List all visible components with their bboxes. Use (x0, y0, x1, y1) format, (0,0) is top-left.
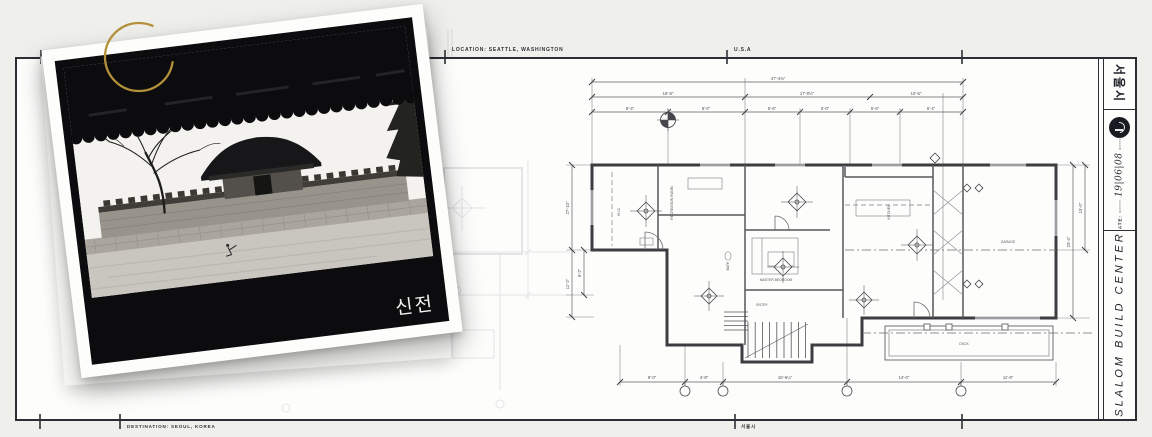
svg-text:4'-8": 4'-8" (700, 375, 709, 380)
photo-caption: 신전 (394, 289, 436, 321)
svg-text:27'-10": 27'-10" (565, 201, 570, 215)
annotation-city-kr: 서울시 (741, 424, 756, 430)
svg-text:8'-4": 8'-4" (626, 106, 635, 111)
svg-text:16'-8": 16'-8" (663, 91, 674, 96)
svg-text:15'-6¼": 15'-6¼" (778, 375, 793, 380)
svg-text:8'-0": 8'-0" (702, 106, 711, 111)
svg-text:KITCHEN: KITCHEN (887, 204, 891, 219)
date-label: DATE: (1117, 215, 1122, 231)
svg-text:DECK: DECK (959, 342, 969, 346)
svg-text:MASTER BEDROOM: MASTER BEDROOM (760, 278, 793, 282)
svg-text:W.I.C: W.I.C (617, 207, 621, 216)
stairs (724, 312, 808, 358)
svg-text:47'-4¾": 47'-4¾" (771, 76, 786, 81)
svg-text:RECREATION ROOM: RECREATION ROOM (670, 186, 674, 220)
svg-text:5'-6": 5'-6" (871, 106, 880, 111)
date-rule (1119, 200, 1121, 212)
region-label: 서울시 (1111, 63, 1128, 102)
svg-text:5'-6": 5'-6" (768, 106, 777, 111)
svg-text:11'-9": 11'-9" (1003, 375, 1014, 380)
annotation-country: U.S.A (734, 47, 751, 53)
grid-bubbles (680, 386, 966, 396)
studio-name: SLALOM BUILD CENTER (1114, 231, 1126, 416)
svg-text:11'-2": 11'-2" (565, 278, 570, 289)
title-block-studio-cell: SLALOM BUILD CENTER (1104, 231, 1135, 417)
date-value: 19|06|08 (1115, 153, 1125, 197)
exterior-walls (592, 165, 1056, 362)
svg-text:17'-0½": 17'-0½" (800, 91, 815, 96)
svg-text:23'-4": 23'-4" (1066, 236, 1071, 247)
title-block-date-cell: DATE: 19|06|08 (1104, 110, 1135, 231)
svg-text:14'-0": 14'-0" (899, 375, 910, 380)
title-block-region-cell: 서울시 (1104, 57, 1135, 110)
room-labels: RECREATION ROOM MASTER BEDROOM KITCHEN G… (617, 186, 1016, 346)
dimension-lines (572, 82, 1085, 386)
svg-text:BATH: BATH (726, 261, 730, 270)
svg-text:10'-6": 10'-6" (911, 91, 922, 96)
windows (592, 165, 1056, 318)
centerlines (612, 172, 1092, 333)
deck-outline (885, 324, 1053, 360)
shelf-braces (933, 190, 963, 295)
svg-text:9'-2": 9'-2" (577, 268, 582, 277)
annotation-destination: DESTINATION: SEOUL, KOREA (127, 424, 216, 429)
title-block-divider-line (1098, 57, 1099, 421)
svg-text:6'-4": 6'-4" (927, 106, 936, 111)
annotation-location: LOCATION: SEATTLE, WASHINGTON (452, 47, 564, 53)
floor-plan: 47'-4¾" 16'-8" 17'-0½" 10'-6" 8'-4" 8'-0… (565, 76, 1092, 396)
title-block: 서울시 DATE: 19|06|08 SLALOM BUILD CENTER (1098, 57, 1137, 421)
gold-ring-accent (100, 18, 178, 96)
svg-text:GARAGE: GARAGE (1001, 240, 1016, 244)
svg-text:5'-0": 5'-0" (821, 106, 830, 111)
svg-text:15'-0": 15'-0" (1078, 202, 1083, 213)
poster-stage: 47'-4¾" 16'-8" 17'-0½" 10'-6" 8'-4" 8'-0… (0, 0, 1152, 437)
date-rule-2 (1119, 138, 1121, 150)
svg-text:ENTRY: ENTRY (756, 303, 768, 307)
dimension-texts: 47'-4¾" 16'-8" 17'-0½" 10'-6" 8'-4" 8'-0… (565, 76, 1083, 380)
svg-text:8'-0": 8'-0" (648, 375, 657, 380)
date-field: DATE: 19|06|08 (1115, 135, 1125, 231)
